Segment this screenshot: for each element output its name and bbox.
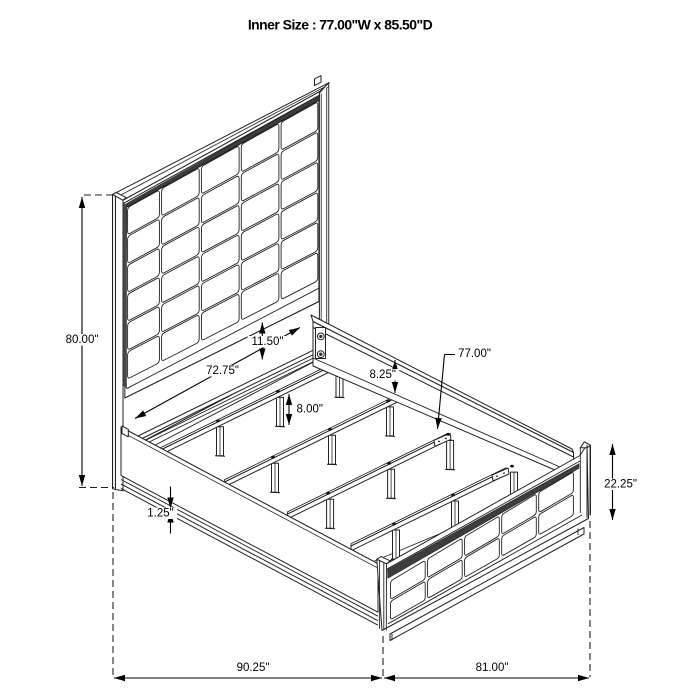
svg-text:72.75": 72.75"	[206, 365, 239, 377]
svg-text:77.00": 77.00"	[458, 348, 491, 360]
svg-text:Inner Size : 77.00"W x 85.50"D: Inner Size : 77.00"W x 85.50"D	[248, 17, 433, 33]
svg-text:8.25": 8.25"	[369, 369, 395, 381]
svg-text:80.00": 80.00"	[66, 334, 99, 346]
svg-text:8.00": 8.00"	[297, 404, 323, 416]
svg-text:1.25": 1.25"	[147, 508, 173, 520]
svg-text:11.50": 11.50"	[251, 336, 283, 348]
svg-text:22.25": 22.25"	[604, 479, 637, 491]
svg-text:90.25": 90.25"	[237, 662, 270, 674]
svg-text:81.00": 81.00"	[476, 662, 509, 674]
